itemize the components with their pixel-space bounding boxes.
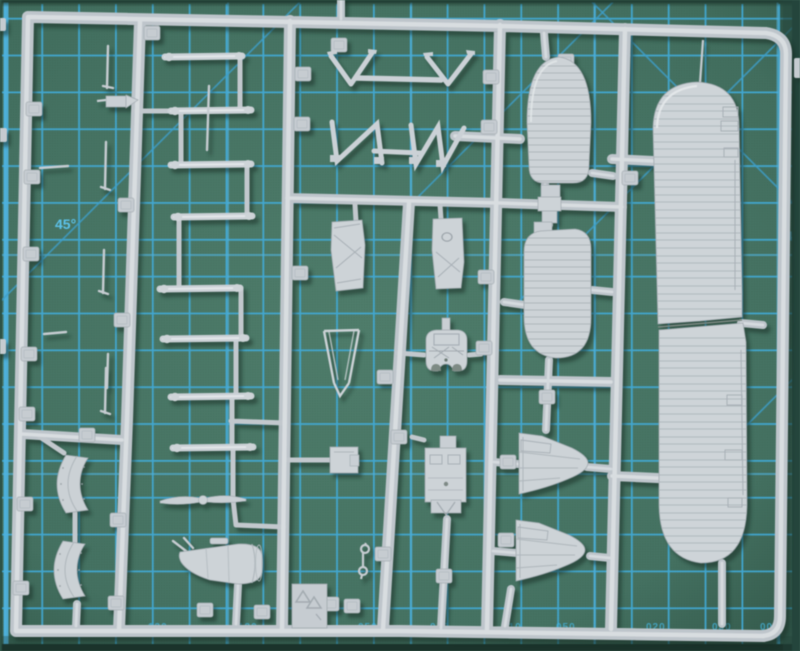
svg-text:45°: 45°: [55, 216, 76, 232]
